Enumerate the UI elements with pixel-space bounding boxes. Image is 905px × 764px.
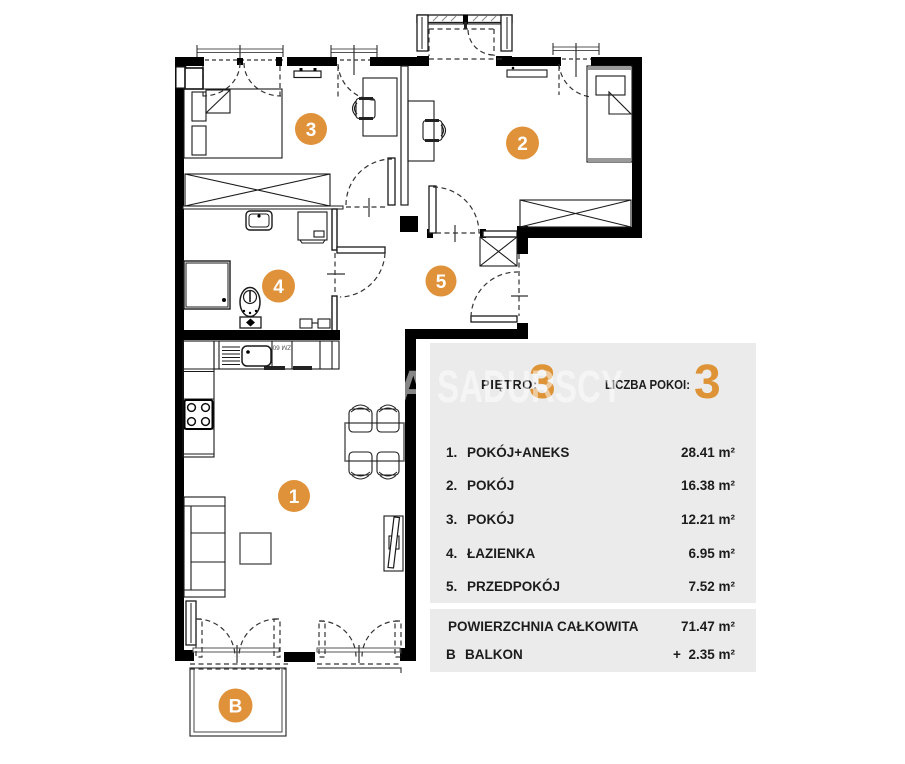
- svg-text:16.38 m²: 16.38 m²: [681, 478, 736, 493]
- svg-text:5.: 5.: [446, 579, 457, 594]
- svg-text:5: 5: [436, 272, 447, 293]
- svg-text:6.95 m²: 6.95 m²: [688, 546, 735, 561]
- svg-text:BALKON: BALKON: [465, 647, 523, 662]
- svg-text:12.21 m²: 12.21 m²: [681, 512, 736, 527]
- svg-text:3.: 3.: [446, 512, 457, 527]
- svg-text:A: A: [397, 361, 430, 412]
- svg-text:POKÓJ: POKÓJ: [467, 478, 514, 493]
- svg-text:3: 3: [694, 356, 721, 409]
- svg-text:2: 2: [517, 134, 528, 155]
- svg-text:B: B: [229, 697, 243, 718]
- svg-text:ZM 60: ZM 60: [272, 344, 291, 351]
- svg-text:3: 3: [306, 120, 317, 141]
- svg-text:2.35 m²: 2.35 m²: [688, 647, 735, 662]
- svg-text:SADURSCY: SADURSCY: [437, 361, 623, 412]
- svg-text:4.: 4.: [446, 546, 457, 561]
- svg-text:POKÓJ: POKÓJ: [467, 512, 514, 527]
- svg-text:1: 1: [289, 487, 300, 508]
- svg-text:1.: 1.: [446, 445, 457, 460]
- svg-text:71.47 m²: 71.47 m²: [681, 619, 736, 634]
- svg-text:POWIERZCHNIA CAŁKOWITA: POWIERZCHNIA CAŁKOWITA: [448, 619, 639, 634]
- svg-text:7.52 m²: 7.52 m²: [688, 579, 735, 594]
- svg-text:ŁAZIENKA: ŁAZIENKA: [467, 546, 535, 561]
- svg-text:+: +: [673, 647, 681, 662]
- svg-text:PRZEDPOKÓJ: PRZEDPOKÓJ: [467, 579, 560, 594]
- svg-text:4: 4: [273, 277, 284, 298]
- svg-text:2.: 2.: [446, 478, 457, 493]
- svg-text:POKÓJ+ANEKS: POKÓJ+ANEKS: [467, 445, 569, 460]
- svg-text:B: B: [446, 647, 456, 662]
- svg-text:28.41 m²: 28.41 m²: [681, 445, 736, 460]
